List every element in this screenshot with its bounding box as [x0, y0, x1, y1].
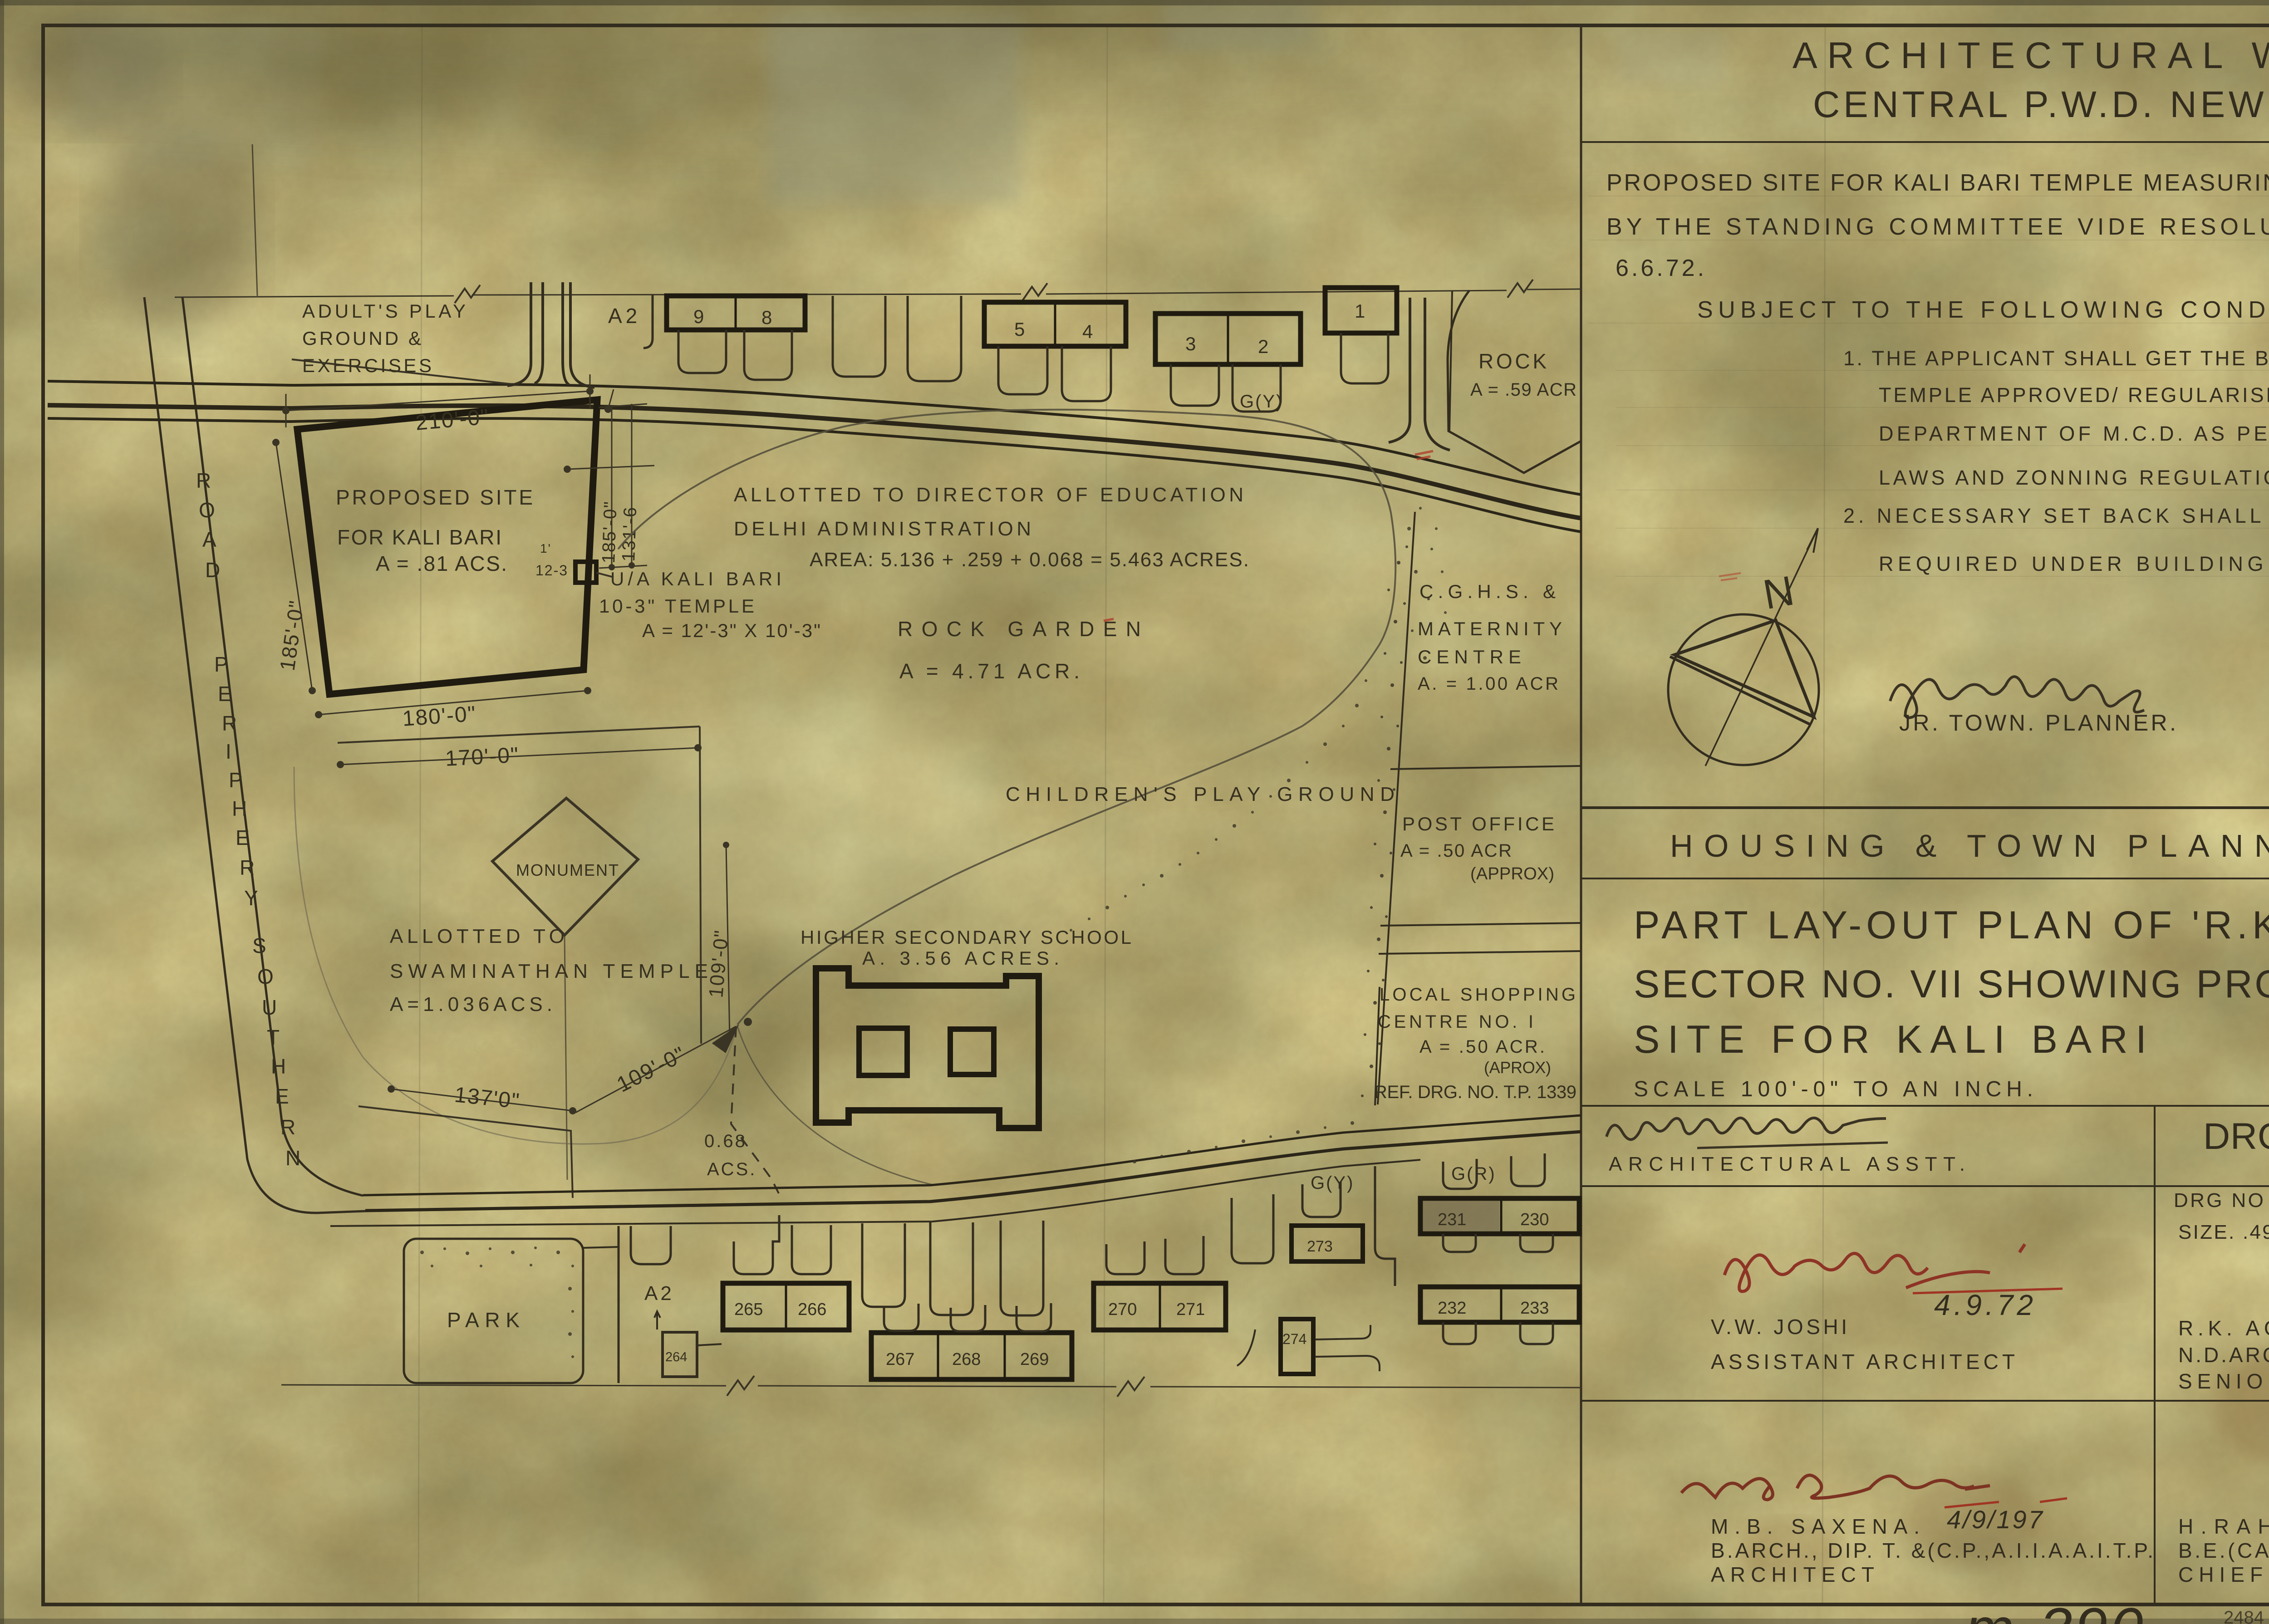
svg-text:A. = 1.00 ACR: A. = 1.00 ACR [1418, 674, 1558, 694]
svg-text:5: 5 [1014, 319, 1025, 340]
svg-text:U: U [262, 996, 277, 1019]
svg-text:273: 273 [1307, 1238, 1333, 1255]
svg-text:P: P [229, 768, 243, 792]
svg-text:A = .50 ACR: A = .50 ACR [1400, 841, 1512, 861]
svg-text:R: R [222, 711, 237, 735]
svg-text:R: R [196, 469, 211, 492]
svg-text:0.68: 0.68 [704, 1131, 747, 1151]
svg-text:274: 274 [1282, 1331, 1306, 1347]
svg-text:MATERNITY: MATERNITY [1418, 618, 1562, 639]
svg-text:233: 233 [1520, 1299, 1549, 1318]
svg-text:E: E [236, 826, 250, 849]
svg-text:4: 4 [1082, 321, 1093, 342]
svg-text:PROPOSED SITE FOR KALI BARI TE: PROPOSED SITE FOR KALI BARI TEMPLE MEASU… [1606, 170, 2269, 196]
svg-text:AREA: 5.136 + .259 + 0.068 = 5: AREA: 5.136 + .259 + 0.068 = 5.463 ACRES… [810, 549, 1249, 571]
svg-text:R: R [280, 1115, 295, 1139]
svg-text:SUBJECT TO THE FOLLOWING CONDI: SUBJECT TO THE FOLLOWING CONDITIONS. [1697, 297, 2269, 323]
svg-text:DRG.No.T.P.2484: DRG.No.T.P.2484 [2203, 1116, 2269, 1157]
svg-text:HIGHER SECONDARY SCHOOL: HIGHER SECONDARY SCHOOL [801, 927, 1131, 948]
svg-text:A: A [202, 528, 216, 551]
svg-text:REF. DRG. NO. T.P. 1339: REF. DRG. NO. T.P. 1339 [1374, 1082, 1577, 1102]
svg-text:269: 269 [1020, 1350, 1049, 1369]
svg-text:1. THE APPLICANT SHALL GET THE: 1. THE APPLICANT SHALL GET THE BUILDING … [1843, 347, 2269, 370]
svg-text:R: R [240, 856, 255, 879]
svg-text:2484: 2484 [2224, 1608, 2264, 1624]
svg-text:SECTOR NO. VII SHOWING PROPOS: SECTOR NO. VII SHOWING PROPOSED [1634, 962, 2269, 1006]
svg-text:B.E.(CAL),M.ARCH.,(M.I.T.) F.I: B.E.(CAL),M.ARCH.,(M.I.T.) F.I.I.A., [2178, 1539, 2269, 1562]
svg-text:12-3: 12-3 [535, 562, 568, 579]
svg-text:T: T [267, 1025, 280, 1049]
svg-text:LAWS AND ZONNING REGULATIONS O: LAWS AND ZONNING REGULATIONS OF MASTER P… [1879, 466, 2269, 489]
svg-text:O: O [199, 498, 215, 522]
svg-text:G(Y): G(Y) [1311, 1173, 1354, 1193]
svg-text:G(R): G(R) [1451, 1164, 1496, 1184]
svg-text:267: 267 [886, 1350, 914, 1369]
svg-text:GROUND &: GROUND & [302, 328, 421, 349]
svg-text:1: 1 [1355, 300, 1365, 322]
svg-text:Y: Y [244, 886, 258, 910]
svg-text:N.D.ARCH.,DIP.T.P., A.I.I.A.,A: N.D.ARCH.,DIP.T.P., A.I.I.A.,A.I.T.P, [2178, 1343, 2269, 1367]
svg-text:266: 266 [798, 1300, 826, 1319]
svg-text:185'-0": 185'-0" [599, 500, 621, 564]
svg-text:CHIEF ARCHITECT: CHIEF ARCHITECT [2178, 1563, 2269, 1586]
svg-text:A = 12'-3" X 10'-3": A = 12'-3" X 10'-3" [642, 620, 820, 641]
svg-text:V.W. JOSHI: V.W. JOSHI [1711, 1315, 1847, 1339]
svg-text:A2: A2 [608, 304, 641, 328]
svg-text:SCALE 100'-0" TO AN INCH.: SCALE 100'-0" TO AN INCH. [1634, 1077, 2033, 1101]
svg-text:268: 268 [952, 1350, 981, 1369]
svg-text:180'-0": 180'-0" [402, 702, 477, 731]
svg-text:JR. TOWN. PLANNER.: JR. TOWN. PLANNER. [1899, 710, 2176, 736]
svg-text:E: E [218, 682, 232, 706]
svg-text:MONUMENT: MONUMENT [516, 861, 619, 879]
svg-text:A2: A2 [644, 1282, 674, 1305]
svg-text:232: 232 [1438, 1299, 1466, 1318]
svg-text:4.9.72: 4.9.72 [1934, 1289, 2037, 1321]
svg-text:231: 231 [1438, 1210, 1466, 1229]
svg-text:ARCHITECTURAL ASSTT.: ARCHITECTURAL ASSTT. [1609, 1153, 1965, 1175]
svg-text:(APROX): (APROX) [1484, 1058, 1551, 1077]
svg-text:A = .81 ACS.: A = .81 ACS. [376, 552, 507, 575]
svg-text:C.G.H.S. &: C.G.H.S. & [1419, 581, 1556, 602]
svg-text:ACS.: ACS. [707, 1159, 756, 1179]
svg-text:POST OFFICE: POST OFFICE [1402, 813, 1554, 834]
svg-text:DRG NO - TP/M/ 5398 DATED 6.8.: DRG NO - TP/M/ 5398 DATED 6.8.74 [2174, 1189, 2269, 1212]
svg-text:2: 2 [1258, 336, 1268, 357]
svg-text:2. NECESSARY SET BACK SHALL BE: 2. NECESSARY SET BACK SHALL BE LEFT AS [1843, 504, 2269, 527]
svg-text:271: 271 [1176, 1300, 1205, 1319]
svg-text:EXERCISES: EXERCISES [302, 355, 432, 376]
svg-text:6.6.72.: 6.6.72. [1616, 255, 1707, 281]
svg-text:ALLOTTED TO: ALLOTTED TO [390, 925, 565, 947]
svg-text:230: 230 [1520, 1210, 1549, 1229]
svg-text:FOR KALI BARI: FOR KALI BARI [337, 525, 501, 549]
svg-text:REQUIRED UNDER BUILDING BYE-LA: REQUIRED UNDER BUILDING BYE-LAWS. [1879, 552, 2269, 575]
svg-text:G(Y): G(Y) [1240, 392, 1283, 412]
svg-text:CENTRAL P.W.D. NEW DELHI.: CENTRAL P.W.D. NEW DELHI. [1813, 84, 2269, 125]
svg-text:N: N [285, 1146, 300, 1170]
svg-text:170'-0": 170'-0" [445, 743, 520, 771]
svg-text:8: 8 [761, 307, 772, 328]
svg-text:E: E [275, 1084, 289, 1108]
svg-text:9: 9 [693, 306, 704, 327]
svg-text:4/9/197: 4/9/197 [1947, 1505, 2044, 1534]
svg-text:P: P [214, 653, 228, 676]
svg-text:LOCAL SHOPPING: LOCAL SHOPPING [1380, 985, 1576, 1005]
svg-text:m-390: m-390 [1965, 1595, 2146, 1624]
svg-text:D: D [205, 558, 220, 582]
svg-text:270: 270 [1108, 1300, 1137, 1319]
svg-text:1': 1' [540, 541, 551, 555]
svg-text:A = .59 ACR: A = .59 ACR [1470, 380, 1577, 400]
svg-text:I: I [226, 740, 231, 763]
svg-text:S: S [252, 934, 266, 957]
svg-text:SENIOR ARCHITECT.: SENIOR ARCHITECT. [2178, 1369, 2269, 1393]
svg-text:H: H [232, 797, 247, 820]
svg-text:DEPARTMENT OF M.C.D. AS PER BU: DEPARTMENT OF M.C.D. AS PER BUILDING BYE… [1879, 422, 2269, 445]
svg-text:O: O [257, 965, 274, 988]
svg-text:131'-6: 131'-6 [619, 506, 640, 562]
svg-text:265: 265 [734, 1300, 763, 1319]
svg-text:ARCHITECT: ARCHITECT [1711, 1563, 1874, 1586]
svg-text:TEMPLE APPROVED/ REGULARISED F: TEMPLE APPROVED/ REGULARISED FROM BUILDI… [1879, 383, 2269, 407]
svg-text:BY THE STANDING COMMITTEE VIDE: BY THE STANDING COMMITTEE VIDE RESOLUTIO… [1606, 214, 2269, 240]
svg-text:3: 3 [1185, 333, 1196, 354]
svg-text:264: 264 [665, 1350, 687, 1364]
svg-text:SWAMINATHAN TEMPLE: SWAMINATHAN TEMPLE [390, 960, 708, 982]
svg-text:H: H [271, 1055, 286, 1078]
svg-text:(APPROX): (APPROX) [1470, 864, 1554, 883]
